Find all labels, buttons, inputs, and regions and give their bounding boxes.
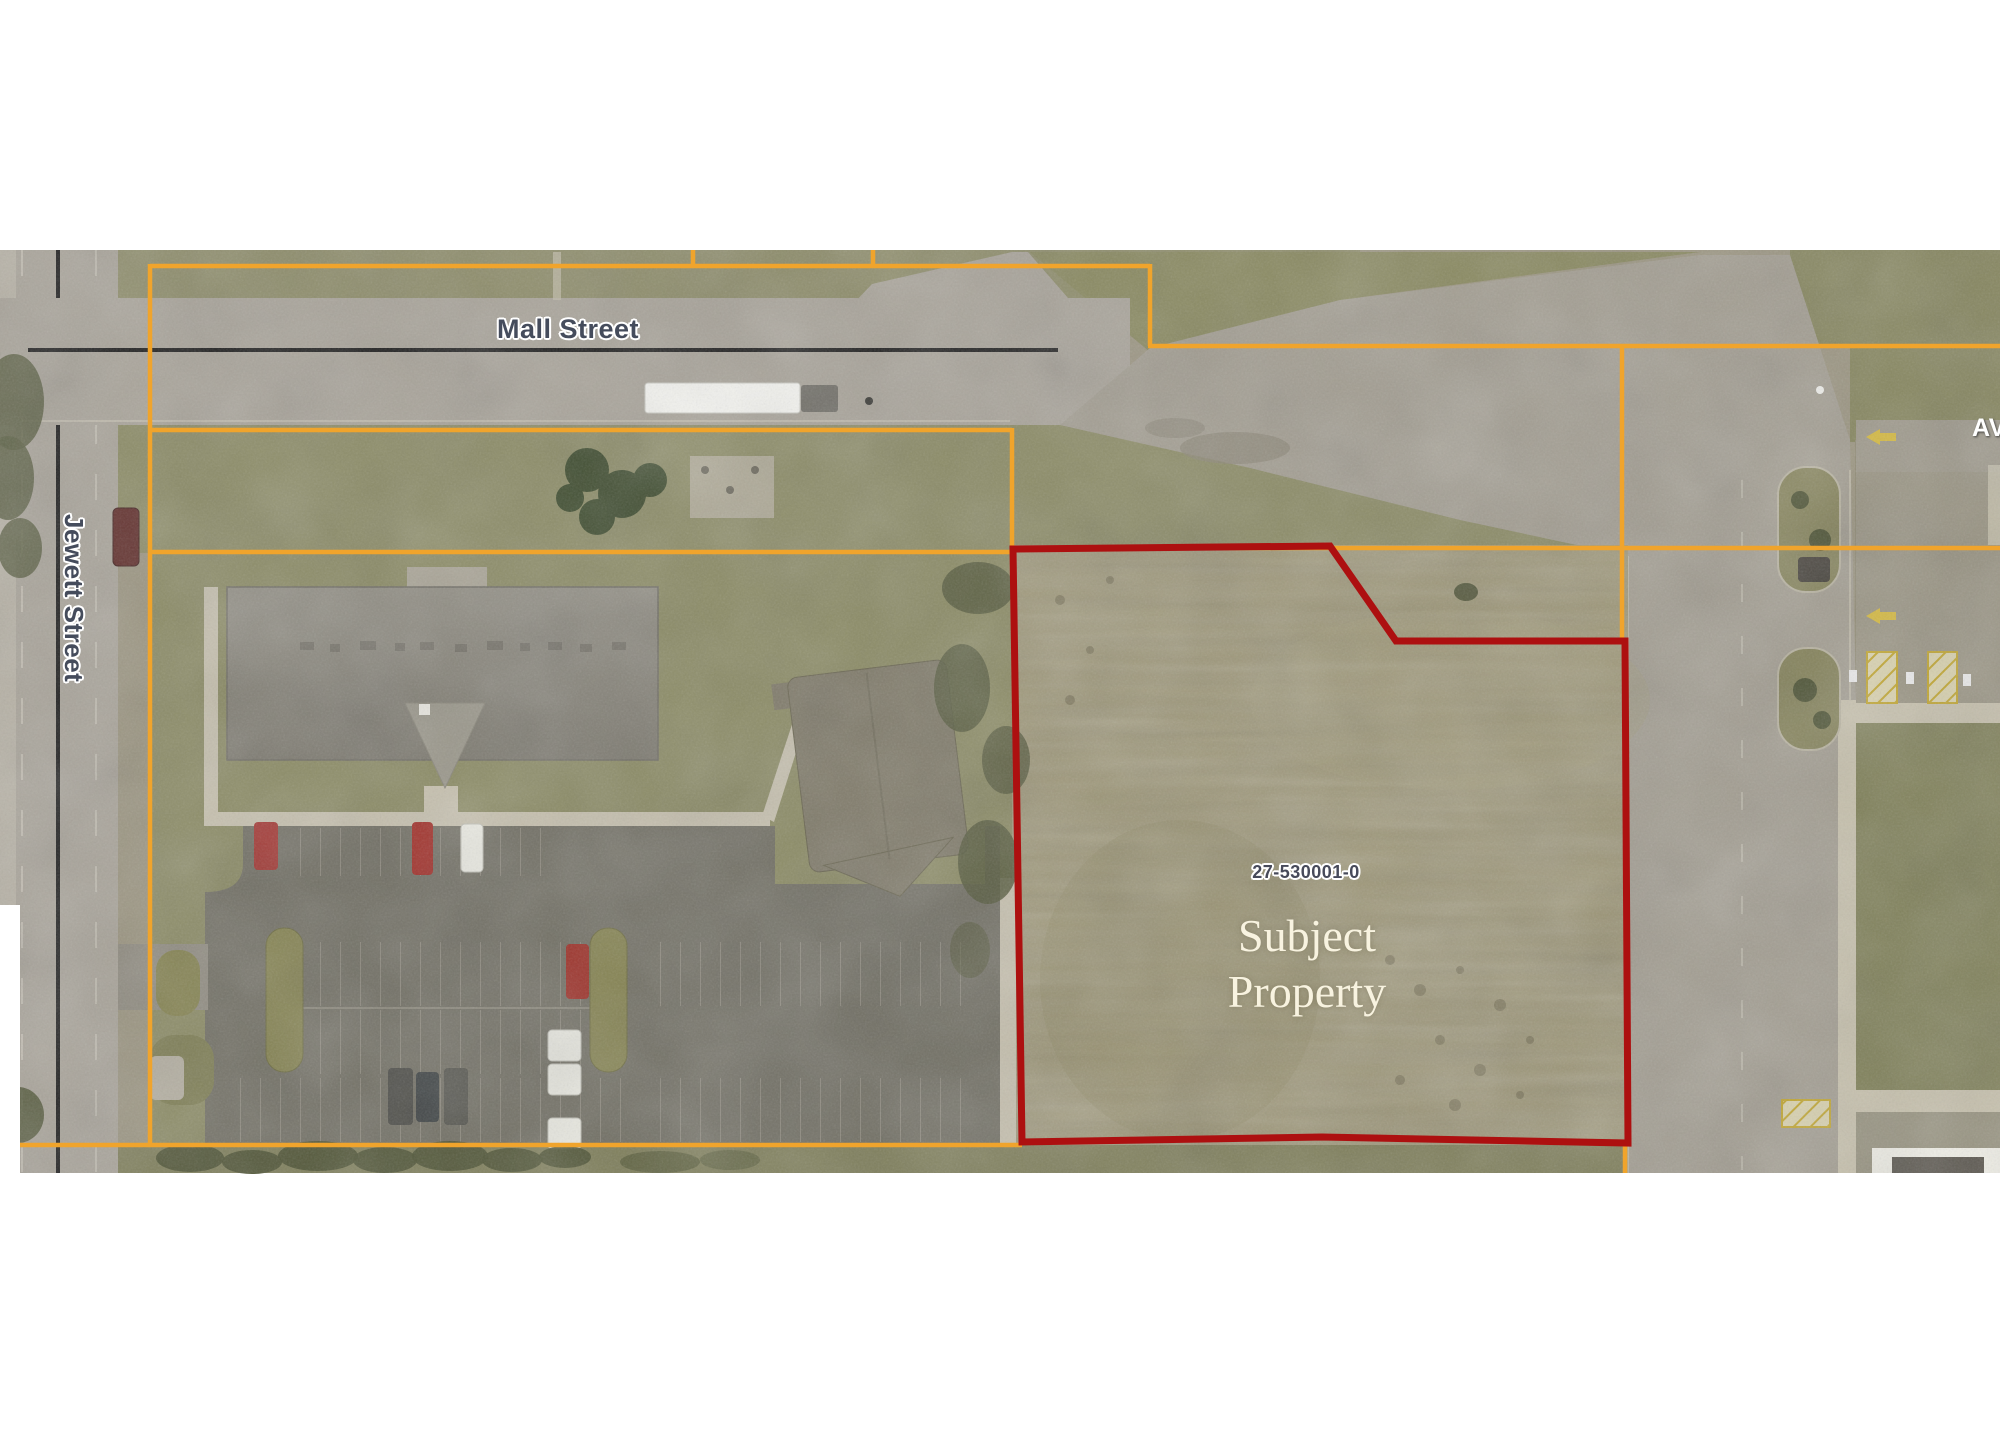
subject-property-label-line1: Subject [1228,908,1386,964]
street-label-mall: Mall Street [497,314,639,345]
street-label-jewett: Jewett Street [58,514,89,682]
photo-grain [0,250,2000,1173]
street-label-avenue-fragment: AV [1972,414,2000,443]
parcel-id-label: 27-530001-0 [1252,862,1360,883]
aerial-photo [0,0,2000,1429]
subject-property-label: Subject Property [1228,908,1386,1020]
photo-edge-mask [0,905,20,1173]
map-exhibit-page: Mall Street Jewett Street 27-530001-0 Su… [0,0,2000,1429]
subject-property-label-line2: Property [1228,964,1386,1020]
